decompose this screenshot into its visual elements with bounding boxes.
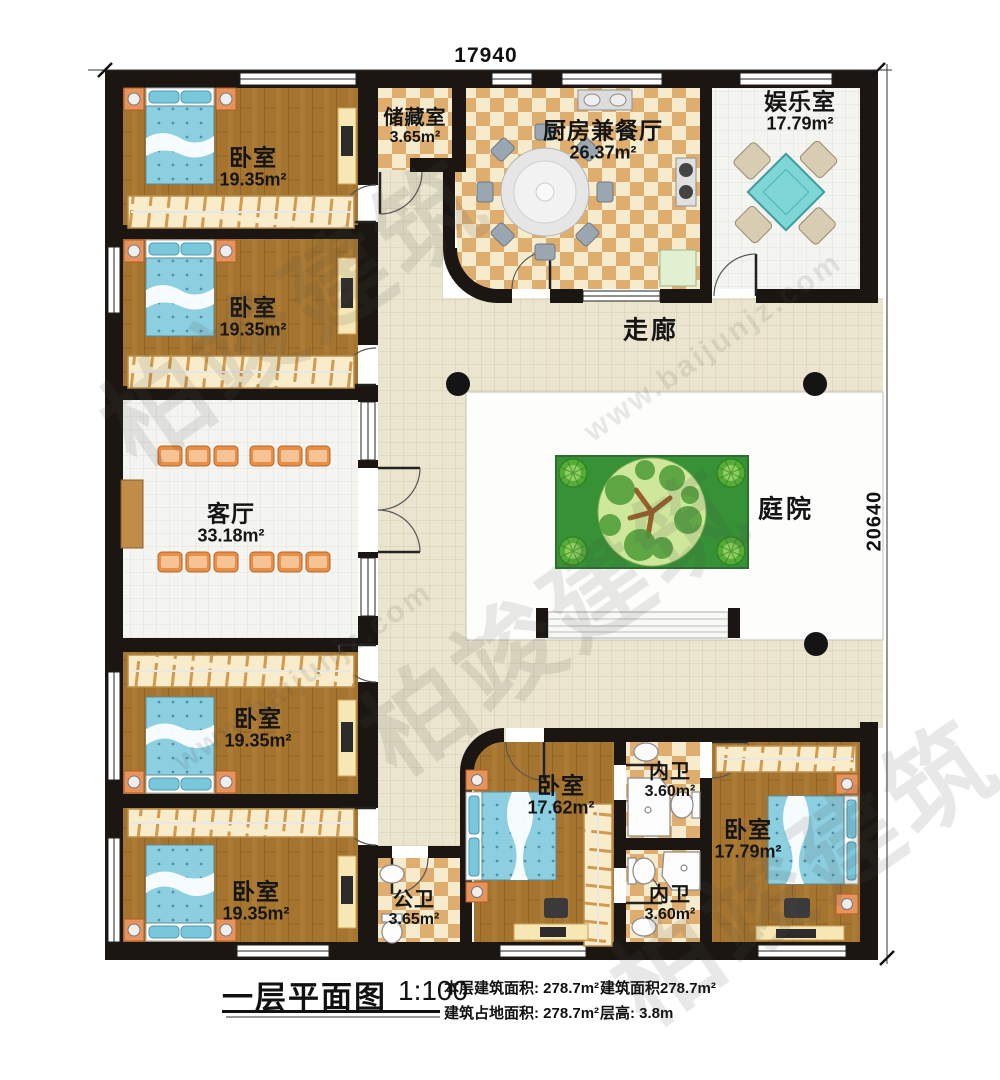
kitchen-sink xyxy=(578,90,632,110)
title-underline-shadow xyxy=(226,1016,440,1018)
bush-icon xyxy=(559,537,587,565)
dimension-width: 17940 xyxy=(454,44,517,68)
title-underline xyxy=(222,1010,440,1013)
floorplan-drawing xyxy=(0,0,1000,1080)
sink-icon xyxy=(380,865,404,883)
floor-area-text: 本层建筑面积: 278.7m² xyxy=(444,977,599,998)
stove xyxy=(676,158,696,206)
footprint-area-text: 建筑占地面积: 278.7m² xyxy=(444,1002,599,1023)
total-area-text: 建筑面积278.7m² xyxy=(600,977,716,998)
storey-height-text: 层高: 3.8m xyxy=(600,1002,673,1023)
corridor-left xyxy=(378,392,466,846)
fridge xyxy=(660,250,696,286)
living-room-floor xyxy=(123,400,358,638)
hall-floor xyxy=(378,170,443,298)
dimension-height: 20640 xyxy=(864,491,887,552)
bush-icon xyxy=(559,459,587,487)
sink-icon xyxy=(634,743,658,761)
sink-icon xyxy=(632,918,656,936)
courtyard-garden xyxy=(556,456,748,568)
floorplan-canvas: 柏竣建筑 柏竣建筑 柏竣建筑 www.baijunjz.com www.baij… xyxy=(0,0,1000,1080)
sideboard xyxy=(121,480,143,548)
storage-floor xyxy=(378,88,452,170)
bush-icon xyxy=(717,459,745,487)
shower-icon xyxy=(662,852,700,890)
porch-steps xyxy=(548,612,728,638)
bush-icon xyxy=(717,537,745,565)
